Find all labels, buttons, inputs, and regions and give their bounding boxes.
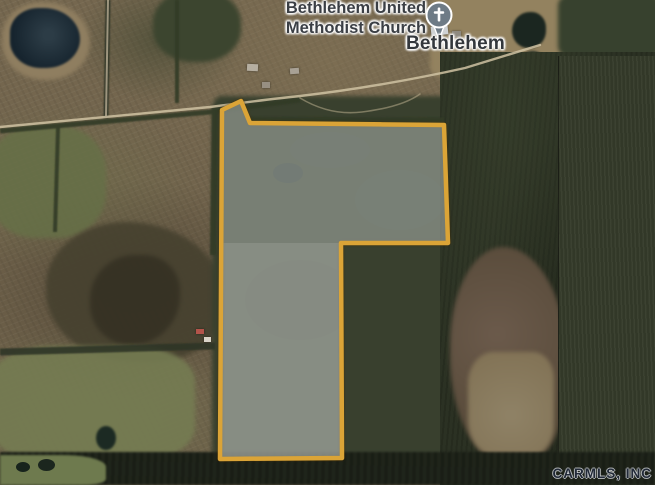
building	[247, 64, 258, 72]
watermark: CARMLS, INC	[553, 466, 653, 481]
building	[262, 82, 270, 88]
driveway	[300, 94, 420, 113]
building	[290, 68, 299, 75]
satellite-map-canvas[interactable]: Bethlehem United Methodist Church Bethle…	[0, 0, 655, 485]
parcel-polygon[interactable]	[220, 101, 448, 459]
road	[0, 45, 540, 127]
place-label[interactable]: Bethlehem	[406, 33, 505, 55]
building	[196, 329, 204, 334]
map-overlay	[0, 0, 655, 485]
building	[204, 337, 211, 342]
parcel-boundary[interactable]	[220, 101, 448, 459]
